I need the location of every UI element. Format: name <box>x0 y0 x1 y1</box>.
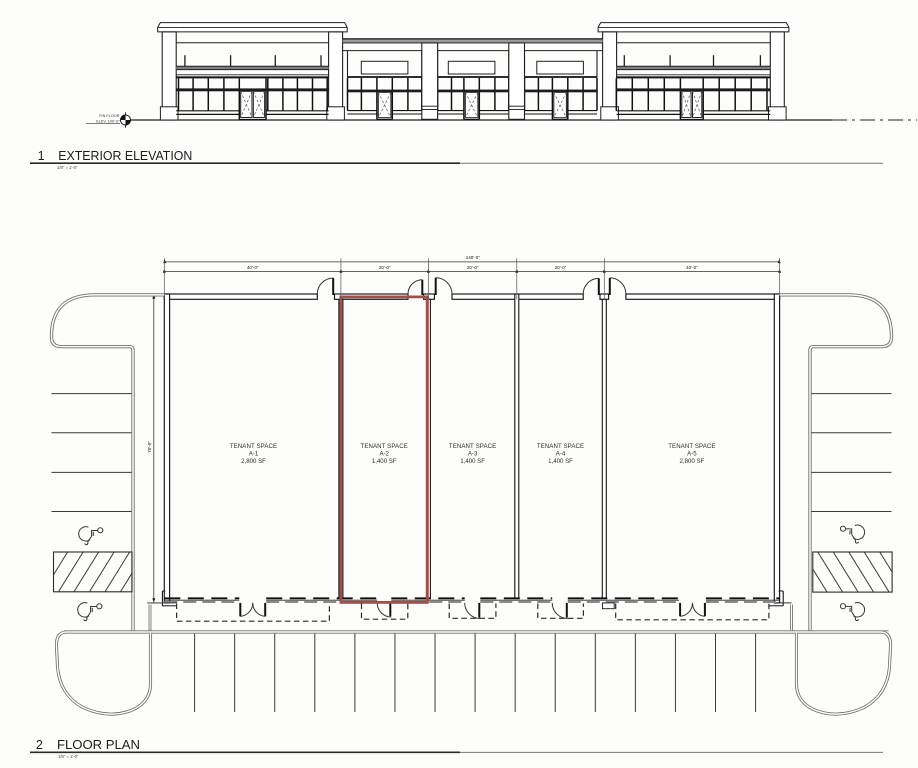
svg-text:2: 2 <box>36 738 43 752</box>
svg-text:TENANT SPACE: TENANT SPACE <box>230 443 277 450</box>
svg-text:A-3: A-3 <box>468 451 478 458</box>
svg-text:40’-0”: 40’-0” <box>247 265 259 270</box>
svg-text:2,800 SF: 2,800 SF <box>680 458 705 465</box>
svg-text:A-4: A-4 <box>556 451 566 458</box>
svg-text:FLOOR PLAN: FLOOR PLAN <box>57 738 140 752</box>
svg-text:20’-0”: 20’-0” <box>555 265 567 270</box>
svg-text:A-2: A-2 <box>379 451 389 458</box>
svg-text:A-1: A-1 <box>249 451 259 458</box>
svg-text:1,400 SF: 1,400 SF <box>372 458 397 465</box>
svg-text:1/8” = 1’-0”: 1/8” = 1’-0” <box>58 754 79 759</box>
svg-text:1: 1 <box>38 149 45 163</box>
svg-text:TENANT SPACE: TENANT SPACE <box>361 443 408 450</box>
svg-text:70’-0”: 70’-0” <box>147 441 152 453</box>
svg-text:40’-0”: 40’-0” <box>686 265 698 270</box>
svg-text:20’-0”: 20’-0” <box>467 265 479 270</box>
svg-text:2,800 SF: 2,800 SF <box>241 458 266 465</box>
svg-text:EXTERIOR ELEVATION: EXTERIOR ELEVATION <box>58 149 192 163</box>
svg-text:1,400 SF: 1,400 SF <box>460 458 485 465</box>
svg-text:A-5: A-5 <box>687 451 697 458</box>
svg-text:TENANT SPACE: TENANT SPACE <box>449 443 496 450</box>
svg-text:1/8” = 1’-0”: 1/8” = 1’-0” <box>57 165 78 170</box>
svg-text:140’-0”: 140’-0” <box>466 255 481 260</box>
svg-text:20’-0”: 20’-0” <box>379 265 391 270</box>
svg-text:TENANT SPACE: TENANT SPACE <box>537 443 584 450</box>
svg-text:1,400 SF: 1,400 SF <box>548 458 573 465</box>
svg-text:TENANT SPACE: TENANT SPACE <box>668 443 715 450</box>
svg-text:FIN FLOOR: FIN FLOOR <box>99 114 120 118</box>
svg-text:ELEV. 100’-0”: ELEV. 100’-0” <box>96 119 120 123</box>
